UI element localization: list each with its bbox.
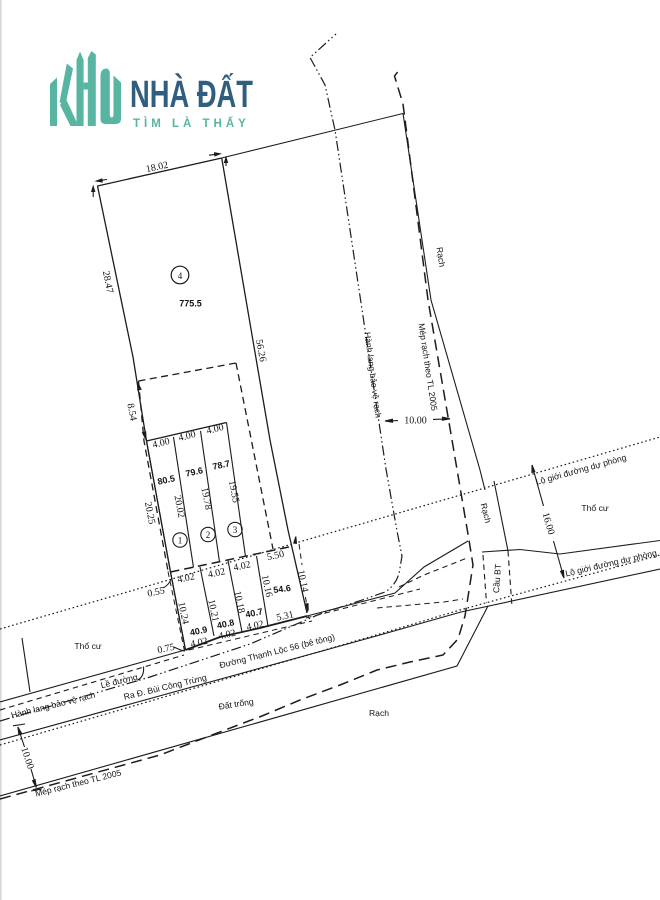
svg-text:Rạch: Rạch: [435, 246, 448, 268]
svg-text:4.02: 4.02: [189, 636, 208, 650]
svg-text:20.02: 20.02: [171, 495, 186, 519]
svg-text:80.5: 80.5: [157, 473, 176, 486]
svg-text:Cầu BT: Cầu BT: [491, 563, 503, 594]
svg-text:4.02: 4.02: [207, 566, 226, 580]
svg-text:Hành lang bảo vệ rạch: Hành lang bảo vệ rạch: [362, 331, 383, 418]
svg-text:19.55: 19.55: [226, 480, 241, 504]
svg-text:Mép rạch theo TL 2005: Mép rạch theo TL 2005: [417, 323, 440, 412]
svg-text:4.02: 4.02: [217, 628, 236, 642]
svg-text:Đất trống: Đất trống: [218, 696, 255, 711]
svg-text:40.7: 40.7: [244, 606, 263, 619]
svg-text:10.00: 10.00: [404, 416, 427, 427]
svg-text:10.21: 10.21: [205, 598, 220, 622]
svg-text:4.02: 4.02: [176, 571, 195, 585]
svg-text:1: 1: [178, 536, 183, 546]
svg-text:0.55: 0.55: [146, 585, 165, 599]
svg-text:56.26: 56.26: [253, 339, 268, 363]
svg-text:10.14: 10.14: [295, 569, 310, 593]
svg-text:2: 2: [206, 530, 211, 540]
svg-text:16.00: 16.00: [540, 511, 557, 536]
svg-text:NHÀ ĐẤT: NHÀ ĐẤT: [130, 72, 253, 116]
svg-text:28.47: 28.47: [100, 270, 115, 294]
svg-text:10.24: 10.24: [175, 601, 190, 625]
svg-text:Rạch: Rạch: [479, 502, 494, 524]
svg-text:4: 4: [178, 271, 183, 281]
svg-text:8.54: 8.54: [124, 402, 138, 421]
svg-text:Lộ giới đường dự phòng: Lộ giới đường dự phòng: [564, 548, 658, 579]
svg-text:5.31: 5.31: [275, 609, 294, 623]
svg-text:78.7: 78.7: [212, 458, 231, 471]
svg-text:TÌM LÀ THẤY: TÌM LÀ THẤY: [133, 117, 249, 130]
svg-text:19.78: 19.78: [198, 487, 213, 511]
svg-text:775.5: 775.5: [179, 299, 202, 309]
svg-text:18.02: 18.02: [145, 160, 169, 175]
svg-text:0.75: 0.75: [156, 642, 175, 656]
svg-text:Thổ cư: Thổ cư: [74, 641, 101, 651]
svg-text:4.00: 4.00: [151, 436, 171, 451]
svg-text:20.25: 20.25: [142, 501, 157, 525]
svg-text:4.02: 4.02: [232, 559, 251, 573]
svg-text:4.02: 4.02: [245, 619, 264, 633]
svg-text:79.6: 79.6: [185, 465, 204, 478]
svg-text:54.6: 54.6: [273, 583, 292, 595]
svg-text:5.50: 5.50: [266, 549, 285, 563]
svg-text:10.00: 10.00: [18, 746, 35, 771]
svg-text:Rạch: Rạch: [369, 708, 389, 718]
svg-text:4.00: 4.00: [177, 429, 197, 444]
svg-text:Thổ cư: Thổ cư: [581, 503, 608, 513]
svg-text:3: 3: [233, 525, 238, 535]
svg-text:Hành lang bảo vệ rạch: Hành lang bảo vệ rạch: [10, 690, 97, 721]
svg-text:4.00: 4.00: [205, 422, 225, 437]
